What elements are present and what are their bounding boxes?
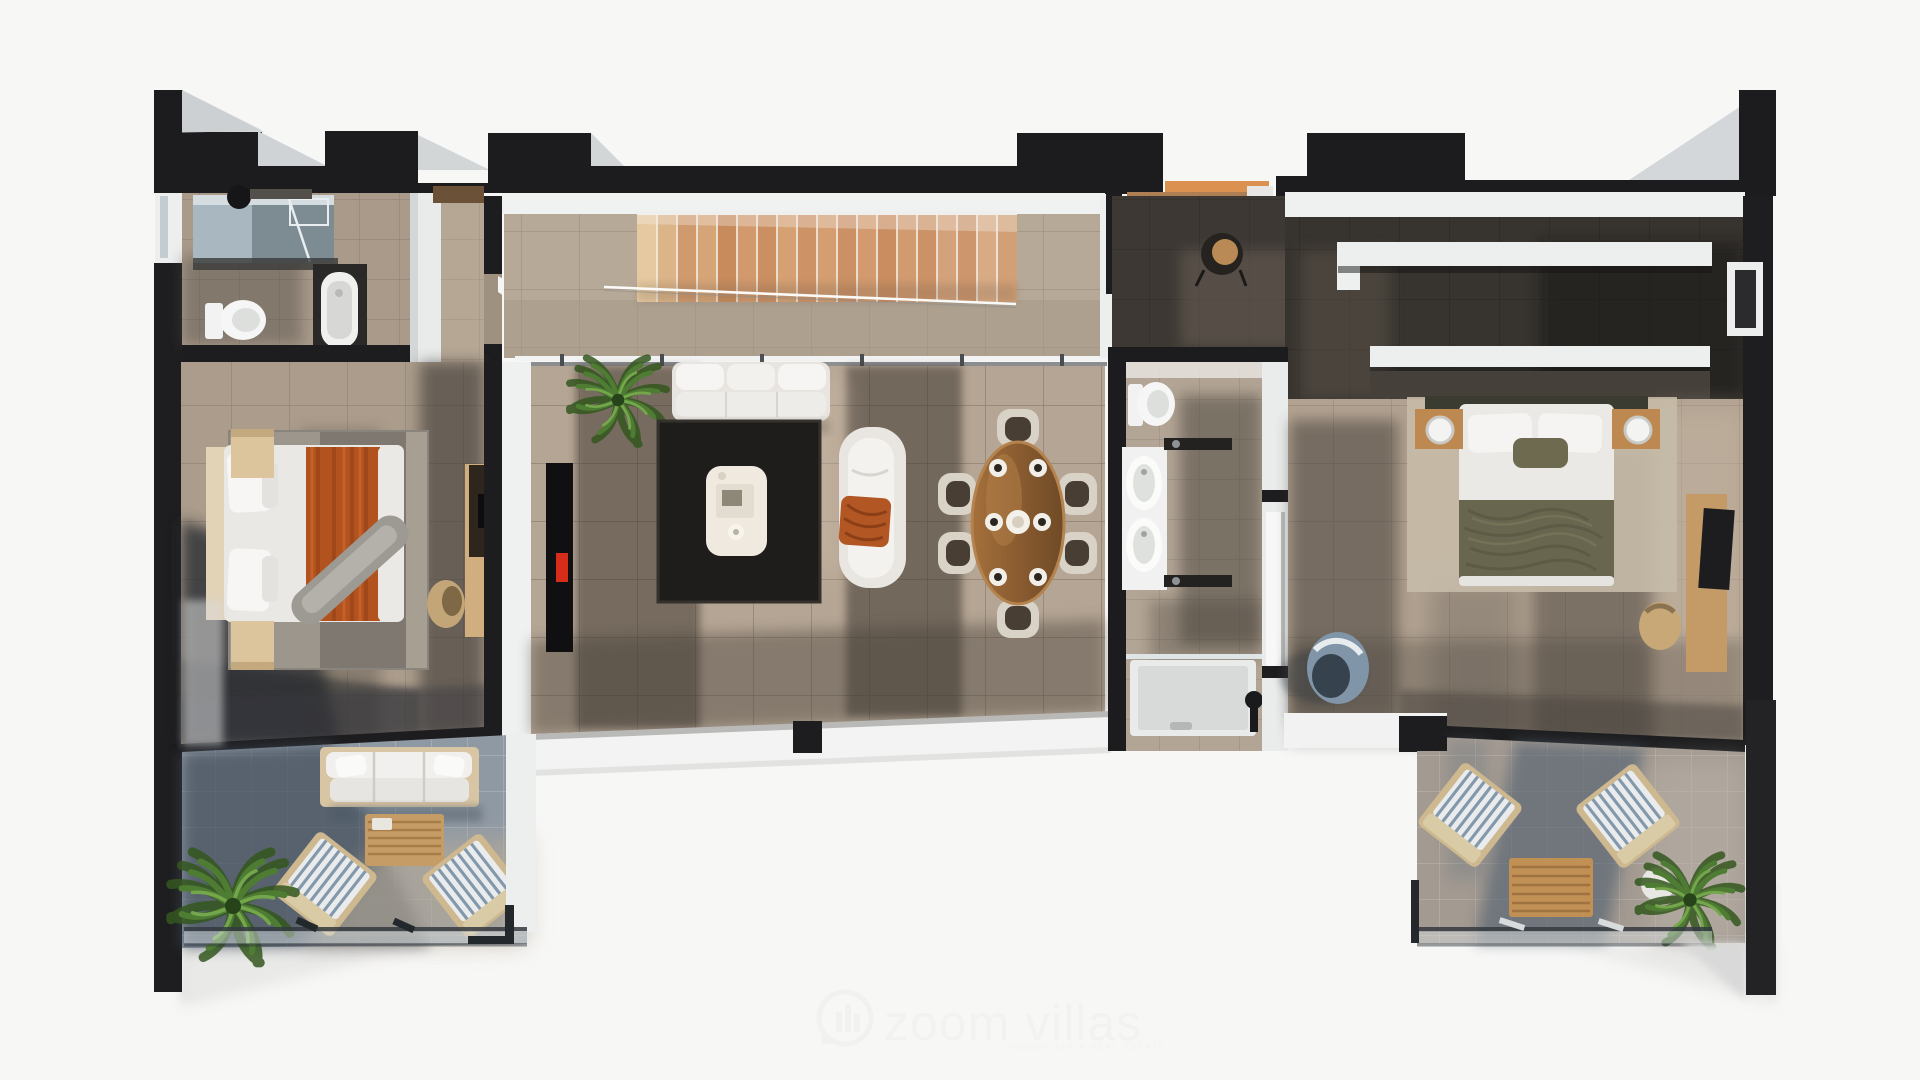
svg-text:INMOBILIARIA REAL ESTATE: INMOBILIARIA REAL ESTATE: [1008, 1042, 1166, 1052]
